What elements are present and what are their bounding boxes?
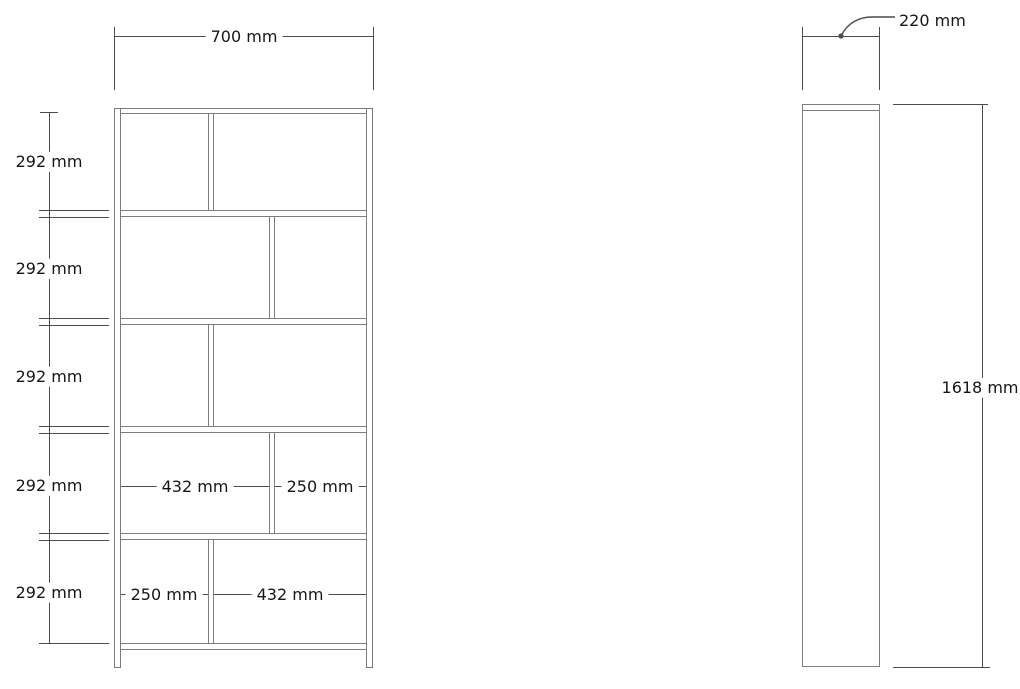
leader-line (828, 8, 900, 42)
dim-extension-line (39, 540, 109, 541)
dim-extension-line (39, 217, 109, 218)
dim-extension-line (373, 27, 374, 90)
front-shelf-4 (120, 533, 367, 540)
row-height-label-2: 292 mm (11, 259, 88, 279)
dim-extension-line (39, 210, 109, 211)
row5-right-width-label: 432 mm (252, 585, 329, 605)
row-height-label-4: 292 mm (11, 476, 88, 496)
front-left-panel (114, 108, 121, 668)
front-divider-row3 (208, 324, 214, 427)
front-width-label: 700 mm (206, 27, 283, 47)
drawing-canvas: 700 mm 292 mm 292 mm 292 mm 292 mm 292 m… (0, 0, 1020, 689)
dim-extension-line (39, 643, 109, 644)
dim-extension-line (39, 533, 109, 534)
front-shelf-1 (120, 210, 367, 217)
side-panel-outline (802, 104, 880, 667)
side-height-label: 1618 mm (937, 378, 1020, 398)
row4-right-width-label: 250 mm (282, 477, 359, 497)
dim-extension-line (893, 667, 990, 668)
front-divider-row1 (208, 113, 214, 211)
front-bottom-shelf (120, 643, 367, 650)
front-right-panel (366, 108, 373, 668)
leader-dot (838, 33, 843, 38)
front-divider-row4 (269, 432, 275, 534)
front-divider-row2 (269, 216, 275, 319)
dim-extension-line (39, 426, 109, 427)
dim-extension-line (893, 104, 988, 105)
front-shelf-3 (120, 426, 367, 433)
dim-tick (40, 112, 58, 113)
dim-extension-line (39, 433, 109, 434)
front-divider-row5 (208, 539, 214, 644)
dim-extension-line (39, 325, 109, 326)
row-height-label-1: 292 mm (11, 152, 88, 172)
side-top-panel-line (802, 110, 880, 111)
row4-left-width-label: 432 mm (157, 477, 234, 497)
front-shelf-2 (120, 318, 367, 325)
front-top-panel (114, 108, 373, 114)
row-height-label-3: 292 mm (11, 367, 88, 387)
row5-left-width-label: 250 mm (126, 585, 203, 605)
dim-extension-line (39, 318, 109, 319)
side-depth-label: 220 mm (897, 11, 968, 31)
row-height-label-5: 292 mm (11, 583, 88, 603)
